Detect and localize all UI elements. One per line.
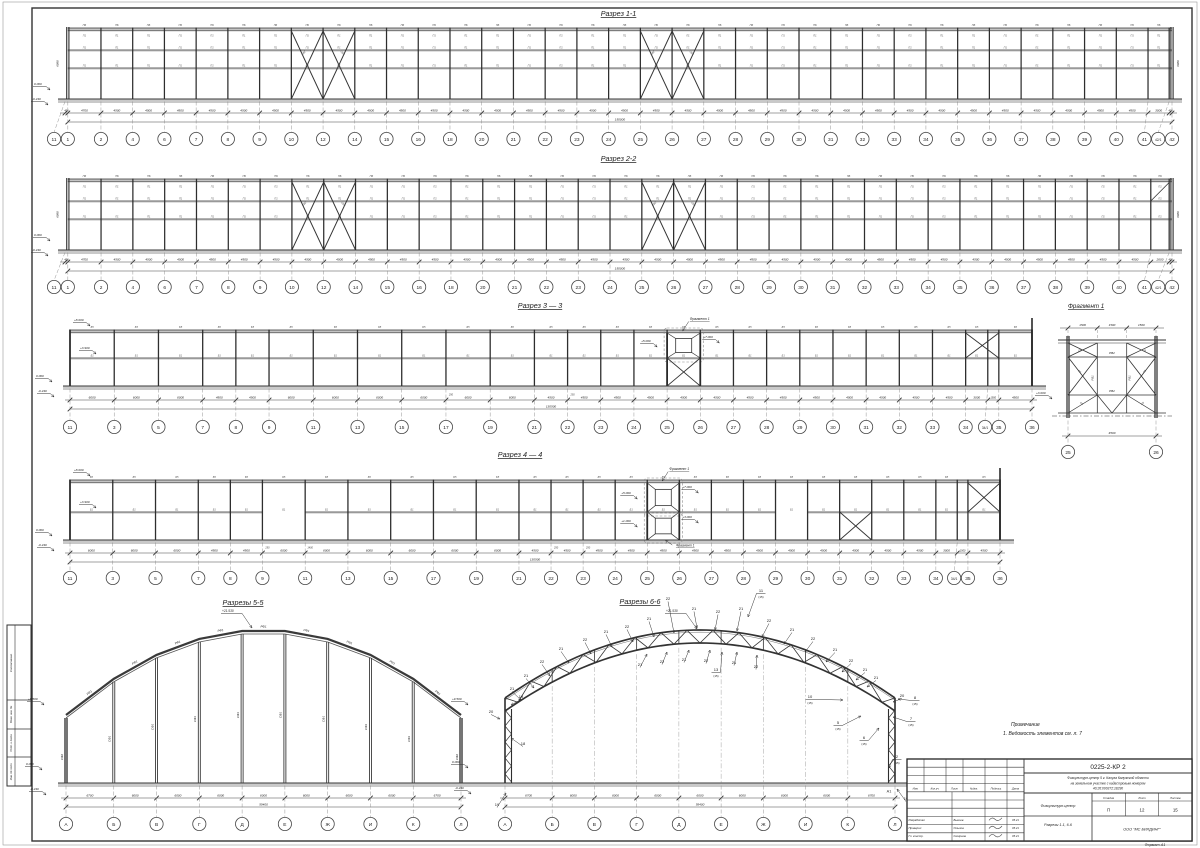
svg-text:4500: 4500 xyxy=(431,108,438,112)
svg-text:4500: 4500 xyxy=(813,395,820,399)
panel-label: Б5 xyxy=(325,475,329,479)
panel-label: Б1 xyxy=(90,508,94,512)
tb-col-header: Изм. xyxy=(913,786,919,790)
callout-label: 21 xyxy=(692,606,697,611)
panel-label: ПБ xyxy=(559,23,563,27)
panel-label: Б1 xyxy=(790,508,794,512)
svg-text:4500: 4500 xyxy=(686,257,693,261)
panel-label: П1 xyxy=(877,33,881,37)
panel-label: Б1 xyxy=(566,508,570,512)
panel-label: П1 xyxy=(497,184,501,188)
panel-label: Б1 xyxy=(848,354,852,358)
panel-label: П1 xyxy=(1067,33,1071,37)
callout-label: 21 xyxy=(647,616,652,621)
panel-label: П1 xyxy=(750,33,754,37)
svg-text:4500: 4500 xyxy=(843,108,850,112)
panel-label: Б5 xyxy=(334,325,338,329)
svg-text:4500: 4500 xyxy=(748,108,755,112)
panel-label: ПБ xyxy=(1101,174,1105,178)
svg-text:4500: 4500 xyxy=(750,257,757,261)
panel-label: П1 xyxy=(433,184,437,188)
panel-label: П1 xyxy=(752,215,756,219)
panel-label: Б5 xyxy=(549,325,553,329)
panel-label: П1 xyxy=(845,46,849,50)
panel-label: ПБ xyxy=(401,23,405,27)
grid-bubble-label: 31 xyxy=(828,137,834,143)
grid-bubble-label: 35 xyxy=(957,285,963,291)
panel-label: П1 xyxy=(908,33,912,37)
callout-label: 20 xyxy=(900,693,905,698)
panel-label: ПБ xyxy=(337,23,341,27)
panel-label: П1 xyxy=(847,215,851,219)
svg-text:3000: 3000 xyxy=(1155,108,1162,112)
panel-label: ПБ xyxy=(686,23,690,27)
panel-label: Б5 xyxy=(782,325,786,329)
column-label: СФ1 xyxy=(364,724,368,731)
section-6-6-title: Разрезы 6-6 xyxy=(620,597,661,606)
panel-label: Б1 xyxy=(598,508,602,512)
panel-label: Б5 xyxy=(975,325,979,329)
panel-label: П1 xyxy=(656,184,660,188)
svg-text:1500: 1500 xyxy=(1138,323,1145,327)
svg-text:4500: 4500 xyxy=(647,395,654,399)
panel-label: П1 xyxy=(815,215,819,219)
svg-text:4500: 4500 xyxy=(211,548,218,552)
svg-text:4500: 4500 xyxy=(240,108,247,112)
panel-label: ПБ xyxy=(1035,23,1039,27)
callout-label: 20 xyxy=(489,709,494,714)
panel-label: П1 xyxy=(561,215,565,219)
note-title: Примечание xyxy=(1011,722,1040,728)
panel-label: П1 xyxy=(624,197,628,201)
panel-label: П1 xyxy=(179,33,183,37)
callout-label: 6 xyxy=(863,735,866,740)
svg-text:6000: 6000 xyxy=(509,395,516,399)
panel-label: Б1 xyxy=(822,508,826,512)
grid-bubble-label: 27 xyxy=(703,285,709,291)
grid-bubble-label: 26 xyxy=(698,425,704,431)
panel-label: П1 xyxy=(179,197,183,201)
svg-text:6000: 6000 xyxy=(388,793,395,797)
panel-label: ПБ xyxy=(654,23,658,27)
panel-label: Б5 xyxy=(790,475,794,479)
panel-label: П1 xyxy=(813,64,817,68)
svg-text:6000: 6000 xyxy=(332,395,339,399)
panel-label: ПБ xyxy=(1003,23,1007,27)
panel-label: Б5 xyxy=(422,325,426,329)
panel-label: П1 xyxy=(815,197,819,201)
svg-text:4500: 4500 xyxy=(272,108,279,112)
panel-label: П1 xyxy=(497,215,501,219)
panel-label: Б5 xyxy=(918,475,922,479)
grid-bubble-label: 11 xyxy=(52,137,57,143)
panel-label: Б1 xyxy=(467,354,471,358)
drawing-sheet: СогласованоВзам. инв. №Подп. и датаИнв. … xyxy=(0,0,1200,848)
panel-label: ПБ xyxy=(972,23,976,27)
panel-label: ПБ xyxy=(561,174,565,178)
panel-label: П1 xyxy=(529,184,533,188)
panel-label: П1 xyxy=(591,64,595,68)
panel-label: Б1 xyxy=(886,508,890,512)
grid-bubble-label: 36 xyxy=(997,576,1003,582)
svg-text:4500: 4500 xyxy=(845,257,852,261)
svg-text:4500: 4500 xyxy=(532,548,539,552)
panel-label: П1 xyxy=(210,64,214,68)
grid-bubble-label: 35 xyxy=(996,425,1002,431)
grid-bubble-label: 23 xyxy=(598,425,604,431)
grid-bubble-label: 27 xyxy=(709,576,715,582)
panel-label: ПБ xyxy=(974,174,978,178)
panel-label: П1 xyxy=(1006,215,1010,219)
panel-label: П1 xyxy=(274,184,278,188)
panel-label: ПБ xyxy=(1158,174,1162,178)
grid-bubble-label: 18 xyxy=(448,285,454,291)
svg-text:4500: 4500 xyxy=(1012,395,1019,399)
panel-label: П1 xyxy=(306,197,310,201)
panel-label: Б1 xyxy=(948,354,952,358)
svg-text:4500: 4500 xyxy=(970,108,977,112)
svg-text:6000: 6000 xyxy=(133,395,140,399)
grid-bubble-label: 16 xyxy=(416,137,422,143)
panel-label: П1 xyxy=(974,184,978,188)
panel-label: П1 xyxy=(1099,46,1103,50)
panel-label: Б1 xyxy=(179,354,183,358)
grid-bubble-label: 42 xyxy=(1169,137,1175,143)
grid-bubble-label: 24 xyxy=(606,137,612,143)
svg-text:-0.240: -0.240 xyxy=(32,248,41,252)
column-label: СФ1 xyxy=(193,716,197,723)
svg-text:6000: 6000 xyxy=(781,793,788,797)
panel-label: П1 xyxy=(911,184,915,188)
svg-text:1500: 1500 xyxy=(1079,323,1086,327)
grid-bubble-label: 38 xyxy=(1053,285,1059,291)
panel-label: Б5 xyxy=(881,325,885,329)
grid-bubble-label: 6 xyxy=(163,137,166,143)
svg-text:4500: 4500 xyxy=(660,548,667,552)
grid-bubble-label: 30 xyxy=(798,285,804,291)
svg-text:3000: 3000 xyxy=(973,395,980,399)
panel-label: Б5 xyxy=(213,475,217,479)
tb-staff-date: 05.21 xyxy=(1012,818,1019,822)
svg-text:6000: 6000 xyxy=(177,395,184,399)
panel-label: Б5 xyxy=(496,475,500,479)
svg-text:6000: 6000 xyxy=(612,793,619,797)
svg-text:6000: 6000 xyxy=(217,793,224,797)
tb-col-header: Лист xyxy=(950,786,959,790)
title-block: Изм.Кол.уч.Лист№док.ПодписьДатаРазработа… xyxy=(907,759,1192,841)
svg-text:4500: 4500 xyxy=(1036,257,1043,261)
panel-label: П1 xyxy=(942,184,946,188)
grid-bubble-label: 25 xyxy=(639,285,645,291)
panel-label: Б1 xyxy=(815,354,819,358)
panel-label: ПБ xyxy=(815,174,819,178)
svg-text:6000: 6000 xyxy=(823,793,830,797)
panel-label: П1 xyxy=(243,215,247,219)
svg-text:4500: 4500 xyxy=(680,395,687,399)
svg-text:+7.000: +7.000 xyxy=(703,335,713,339)
svg-text:6000: 6000 xyxy=(173,548,180,552)
panel-label: Б1 xyxy=(975,354,979,358)
panel-label: П1 xyxy=(592,184,596,188)
panel-label: ПБ xyxy=(720,174,724,178)
svg-text:6000: 6000 xyxy=(451,548,458,552)
panel-label: П1 xyxy=(720,184,724,188)
section-razrez-3-3: Разрез 3 — 3Б5Б1Б5Б1Б5Б1Б5Б1Б5Б1Б5Б1Б5Б1… xyxy=(35,301,1052,434)
callout-label: 21 xyxy=(790,627,795,632)
panel-label: П1 xyxy=(623,46,627,50)
panel-label: Б1 xyxy=(583,354,587,358)
grid-bubble-label: 1 xyxy=(66,137,69,143)
grid-bubble-label: 11 xyxy=(68,576,73,582)
svg-text:-0.240: -0.240 xyxy=(455,786,464,790)
grid-bubble-label: 15 xyxy=(399,425,405,431)
panel-label: Б5 xyxy=(748,325,752,329)
grid-bubble-label: 11 xyxy=(303,576,308,582)
panel-label: Б5 xyxy=(135,325,139,329)
panel-label: Б1 xyxy=(726,508,730,512)
callout-label: 2 xyxy=(896,754,899,759)
grid-bubble-label: В xyxy=(593,822,596,828)
panel-label: ПБ xyxy=(718,23,722,27)
panel-label: П1 xyxy=(464,46,468,50)
panel-label: ПБ xyxy=(274,174,278,178)
panel-label: П1 xyxy=(847,197,851,201)
panel-label: П1 xyxy=(877,64,881,68)
panel-label: Б1 xyxy=(218,354,222,358)
panel-label: П1 xyxy=(147,64,151,68)
panel-label: ПБ xyxy=(591,23,595,27)
panel-label: П1 xyxy=(115,46,119,50)
grid-bubble-label: 34 xyxy=(933,576,939,582)
tb-doc-number: 0225-2-КР 2 xyxy=(1090,764,1126,771)
svg-text:150000: 150000 xyxy=(615,117,626,121)
callout-label: 22 xyxy=(849,658,854,663)
svg-text:6000: 6000 xyxy=(570,793,577,797)
panel-label: П1 xyxy=(1157,46,1161,50)
grid-bubble-label: 9 xyxy=(261,576,264,582)
panel-label: П1 xyxy=(1035,33,1039,37)
panel-label: П1 xyxy=(274,215,278,219)
svg-text:130500: 130500 xyxy=(546,404,557,408)
panel-label: П1 xyxy=(432,64,436,68)
grid-bubble-label: 3 xyxy=(111,576,114,582)
panel-label: П1 xyxy=(210,33,214,37)
svg-text:400: 400 xyxy=(1169,109,1174,112)
panel-label: П1 xyxy=(591,33,595,37)
svg-text:6080: 6080 xyxy=(56,211,60,218)
svg-text:4500: 4500 xyxy=(527,257,534,261)
panel-label: Б5 xyxy=(630,475,634,479)
panel-label: П1 xyxy=(752,184,756,188)
member-label: СВ xyxy=(1140,401,1145,406)
svg-text:6080: 6080 xyxy=(1176,60,1180,67)
panel-label: П1 xyxy=(337,33,341,37)
grid-bubble-label: 36 xyxy=(987,137,993,143)
panel-label: Б1 xyxy=(290,354,294,358)
svg-text:4500: 4500 xyxy=(614,395,621,399)
grid-bubble-label: 17 xyxy=(443,425,449,431)
svg-text:4500: 4500 xyxy=(241,257,248,261)
svg-text:250: 250 xyxy=(570,393,576,396)
panel-label: Б5 xyxy=(175,475,179,479)
panel-label: П1 xyxy=(911,215,915,219)
svg-text:4500: 4500 xyxy=(972,257,979,261)
panel-label: ПБ xyxy=(115,23,119,27)
panel-label: П1 xyxy=(972,46,976,50)
svg-text:4500: 4500 xyxy=(1100,257,1107,261)
panel-label: П1 xyxy=(242,46,246,50)
panel-label: ПБ xyxy=(908,23,912,27)
panel-label: П1 xyxy=(1158,184,1162,188)
panel-label: ПБ xyxy=(592,174,596,178)
callout-ref: (15) xyxy=(908,723,913,727)
panel-label: Б1 xyxy=(175,508,179,512)
panel-label: П1 xyxy=(528,46,532,50)
panel-label: Б5 xyxy=(566,475,570,479)
panel-label: Б1 xyxy=(748,354,752,358)
svg-text:4500: 4500 xyxy=(909,257,916,261)
grid-bubble-label: 36 xyxy=(1029,425,1035,431)
grid-bubble-label: 7 xyxy=(195,285,198,291)
callout-ref: (15) xyxy=(758,595,763,599)
panel-label: П1 xyxy=(942,197,946,201)
drawing-canvas: СогласованоВзам. инв. №Подп. и датаИнв. … xyxy=(0,0,1200,848)
grid-bubble-label: 27 xyxy=(701,137,707,143)
grid-bubble-label: 11 xyxy=(311,425,316,431)
panel-label: П1 xyxy=(115,184,119,188)
callout-ref: (15) xyxy=(835,727,840,731)
panel-label: Б5 xyxy=(616,325,620,329)
panel-label: П1 xyxy=(369,64,373,68)
panel-label: Б5 xyxy=(378,325,382,329)
grid-bubble-label: 35 xyxy=(965,576,971,582)
panel-label: П1 xyxy=(783,184,787,188)
panel-label: Б1 xyxy=(378,354,382,358)
svg-text:150000: 150000 xyxy=(615,266,626,270)
svg-text:6000: 6000 xyxy=(376,395,383,399)
grid-bubble-label: 11 xyxy=(52,285,57,291)
panel-label: П1 xyxy=(83,184,87,188)
panel-label: П1 xyxy=(528,33,532,37)
arch-segment-label: РФ1 xyxy=(174,639,181,645)
panel-label: Б1 xyxy=(881,354,885,358)
fragment-ref-label: Фрагмент 1 xyxy=(690,317,710,321)
grid-bubble-label: 8 xyxy=(227,137,230,143)
svg-text:6700: 6700 xyxy=(434,793,441,797)
panel-label: П1 xyxy=(1101,184,1105,188)
side-label: Согласовано xyxy=(9,654,13,673)
grid-bubble-label: Б xyxy=(112,822,115,828)
grid-bubble-label: 25 xyxy=(664,425,670,431)
grid-bubble-label: 36 xyxy=(989,285,995,291)
panel-label: Б5 xyxy=(822,475,826,479)
grid-bubble-label: 26 xyxy=(1153,450,1159,456)
grid-bubble-label: 29 xyxy=(773,576,779,582)
panel-label: Б1 xyxy=(918,508,922,512)
panel-label: П1 xyxy=(559,46,563,50)
grid-bubble-label: 25 xyxy=(1065,450,1071,456)
svg-text:4500: 4500 xyxy=(724,548,731,552)
grid-bubble-label: 13 xyxy=(355,425,361,431)
svg-text:4500: 4500 xyxy=(336,257,343,261)
svg-text:4500: 4500 xyxy=(653,108,660,112)
svg-text:4500: 4500 xyxy=(846,395,853,399)
panel-label: П1 xyxy=(1035,64,1039,68)
tb-object: Физкультурн-центр xyxy=(1041,804,1076,808)
callout-label: 19 xyxy=(495,802,500,807)
grid-bubble-label: 23 xyxy=(576,285,582,291)
callout-label: 19 xyxy=(519,694,524,699)
section-razrez-1-1-title: Разрез 1-1 xyxy=(601,9,637,18)
svg-text:6000: 6000 xyxy=(288,395,295,399)
panel-label: Б5 xyxy=(1014,325,1018,329)
callout-label: 7 xyxy=(910,716,913,721)
tb-description: 40:26:000372:18290 xyxy=(1093,787,1123,791)
panel-label: П1 xyxy=(147,197,151,201)
svg-text:4500: 4500 xyxy=(756,548,763,552)
callout-ref: (15) xyxy=(894,761,899,765)
panel-label: П1 xyxy=(306,46,310,50)
panel-label: П1 xyxy=(879,184,883,188)
arch-segment-label: РФ1 xyxy=(346,640,353,646)
grid-bubble-label: 23 xyxy=(574,137,580,143)
grid-bubble-label: 26 xyxy=(671,285,677,291)
panel-label: Б1 xyxy=(411,508,415,512)
tb-company: ООО "МС БИЛДИНГ" xyxy=(1123,828,1161,832)
svg-text:4500: 4500 xyxy=(177,257,184,261)
panel-label: Б1 xyxy=(533,508,537,512)
member-label: РВ1 xyxy=(1091,375,1095,381)
panel-label: П1 xyxy=(1133,197,1137,201)
svg-text:6000: 6000 xyxy=(494,548,501,552)
svg-text:4500: 4500 xyxy=(811,108,818,112)
panel-label: П1 xyxy=(464,64,468,68)
grid-bubble-label: 12 xyxy=(320,137,326,143)
svg-text:4500: 4500 xyxy=(581,395,588,399)
grid-bubble-label: И xyxy=(369,822,373,828)
svg-text:4700: 4700 xyxy=(81,257,88,261)
svg-text:4500: 4500 xyxy=(1065,108,1072,112)
grid-bubble-label: 34/1 xyxy=(951,577,958,581)
svg-text:4500: 4500 xyxy=(820,548,827,552)
callout-label: 21 xyxy=(524,673,529,678)
panel-label: ПБ xyxy=(83,23,87,27)
member-label: РВ2 xyxy=(1109,389,1115,393)
svg-text:0.000: 0.000 xyxy=(452,760,460,764)
column-label: СФ1 xyxy=(150,724,154,731)
panel-label: П1 xyxy=(847,184,851,188)
panel-label: ПБ xyxy=(624,174,628,178)
grid-bubble-label: Б xyxy=(551,822,554,828)
callout-ref: (15) xyxy=(807,701,812,705)
panel-label: Б5 xyxy=(715,325,719,329)
panel-label: Б1 xyxy=(325,508,329,512)
panel-label: П1 xyxy=(147,184,151,188)
panel-label: Б1 xyxy=(914,354,918,358)
panel-label: П1 xyxy=(1067,46,1071,50)
grid-bubble-label: 32 xyxy=(869,576,875,582)
panel-label: П1 xyxy=(908,64,912,68)
panel-label: Б5 xyxy=(649,325,653,329)
grid-bubble-label: 13 xyxy=(345,576,351,582)
section-razrezy-5-5: Разрезы 5-5СФ2СФ1СФ1СФ1СФ1СФ1СФ1СФ1СФ1СФ… xyxy=(25,598,468,831)
panel-label: Б5 xyxy=(282,475,286,479)
svg-text:4500: 4500 xyxy=(243,548,250,552)
svg-text:-0.240: -0.240 xyxy=(32,97,41,101)
svg-text:4500: 4500 xyxy=(591,257,598,261)
svg-text:4500: 4500 xyxy=(304,257,311,261)
callout-label: 21 xyxy=(739,606,744,611)
